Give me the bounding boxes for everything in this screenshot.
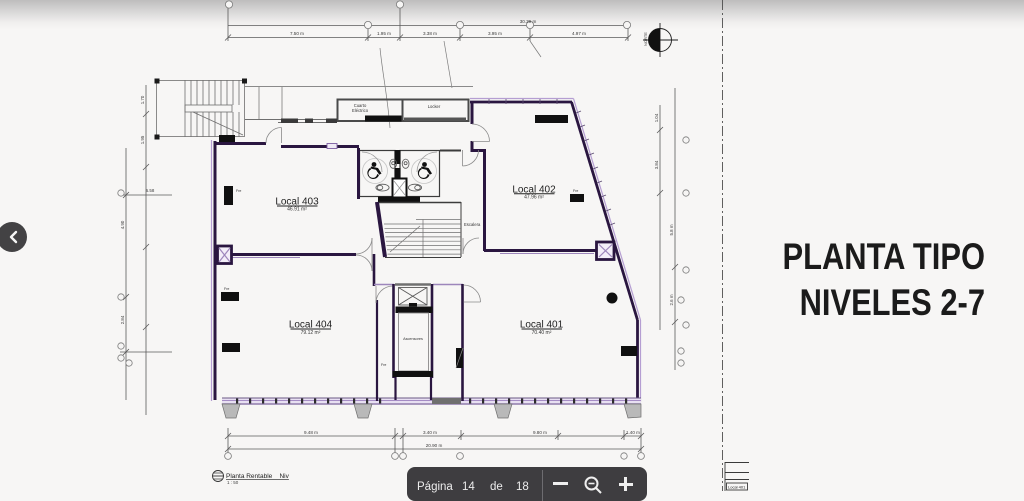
svg-text:9.80 m: 9.80 m bbox=[533, 430, 547, 435]
svg-text:1.40 m: 1.40 m bbox=[626, 430, 640, 435]
svg-text:1.95: 1.95 bbox=[140, 135, 145, 144]
svg-text:3.38 m: 3.38 m bbox=[423, 31, 437, 36]
svg-text:6.58: 6.58 bbox=[146, 188, 155, 193]
svg-text:9.48 m: 9.48 m bbox=[304, 430, 318, 435]
svg-text:3.95 m: 3.95 m bbox=[488, 31, 502, 36]
svg-text:4.97 m: 4.97 m bbox=[572, 31, 586, 36]
svg-text:1.70: 1.70 bbox=[140, 95, 145, 104]
svg-text:Local 401: Local 401 bbox=[728, 485, 746, 490]
svg-text:Escalera: Escalera bbox=[464, 222, 481, 227]
svg-text:70.40 m²: 70.40 m² bbox=[532, 330, 552, 336]
svg-text:47.96 m²: 47.96 m² bbox=[524, 195, 544, 201]
svg-text:1.04: 1.04 bbox=[654, 113, 659, 122]
svg-text:30.39 m: 30.39 m bbox=[520, 19, 537, 24]
svg-text:7.50 m: 7.50 m bbox=[290, 31, 304, 36]
svg-text:NORTE: NORTE bbox=[643, 32, 648, 46]
svg-text:79.12 m²: 79.12 m² bbox=[301, 330, 321, 336]
svg-text:20.90 m: 20.90 m bbox=[426, 443, 443, 448]
svg-text:Eléctrico: Eléctrico bbox=[352, 108, 369, 113]
svg-text:46.91 m²: 46.91 m² bbox=[287, 207, 307, 213]
svg-text:Fre: Fre bbox=[381, 363, 386, 367]
svg-text:Fre: Fre bbox=[573, 189, 578, 193]
svg-text:3.40 m: 3.40 m bbox=[423, 430, 437, 435]
svg-text:1.95 m: 1.95 m bbox=[377, 31, 391, 36]
svg-text:3.84: 3.84 bbox=[654, 160, 659, 169]
svg-text:2.84: 2.84 bbox=[120, 315, 125, 324]
svg-text:1 : 50: 1 : 50 bbox=[227, 480, 239, 485]
svg-text:Planta Rentable _ Niv: Planta Rentable _ Niv bbox=[226, 473, 290, 480]
svg-text:Ascensores: Ascensores bbox=[403, 337, 423, 341]
svg-text:Locker: Locker bbox=[428, 104, 441, 109]
svg-text:Fre: Fre bbox=[224, 287, 229, 291]
svg-text:Fre: Fre bbox=[236, 189, 241, 193]
svg-text:4.90: 4.90 bbox=[120, 220, 125, 229]
